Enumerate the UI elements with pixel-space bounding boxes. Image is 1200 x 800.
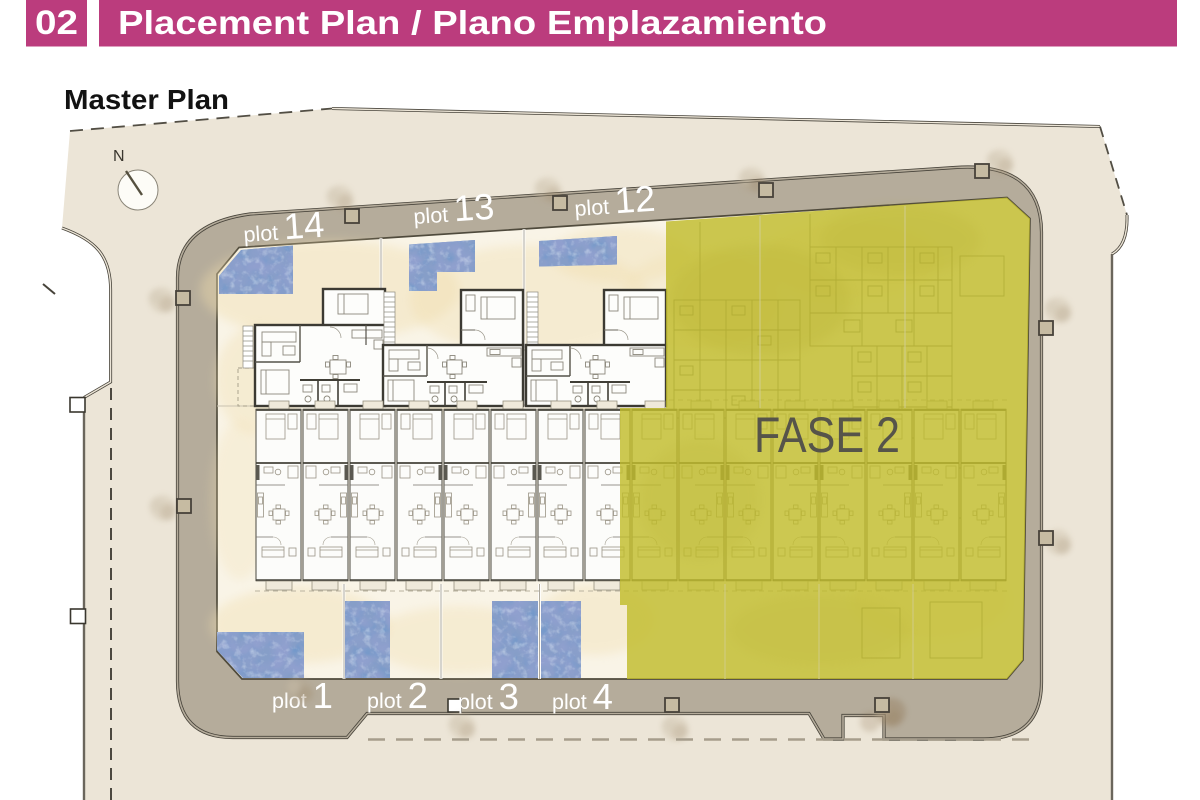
svg-text:Master Plan: Master Plan <box>64 84 229 115</box>
svg-text:FASE 2: FASE 2 <box>754 407 900 463</box>
svg-text:Placement Plan / Plano Emplaza: Placement Plan / Plano Emplazamiento <box>118 4 827 41</box>
svg-text:02: 02 <box>35 4 78 42</box>
svg-text:N: N <box>113 148 125 165</box>
